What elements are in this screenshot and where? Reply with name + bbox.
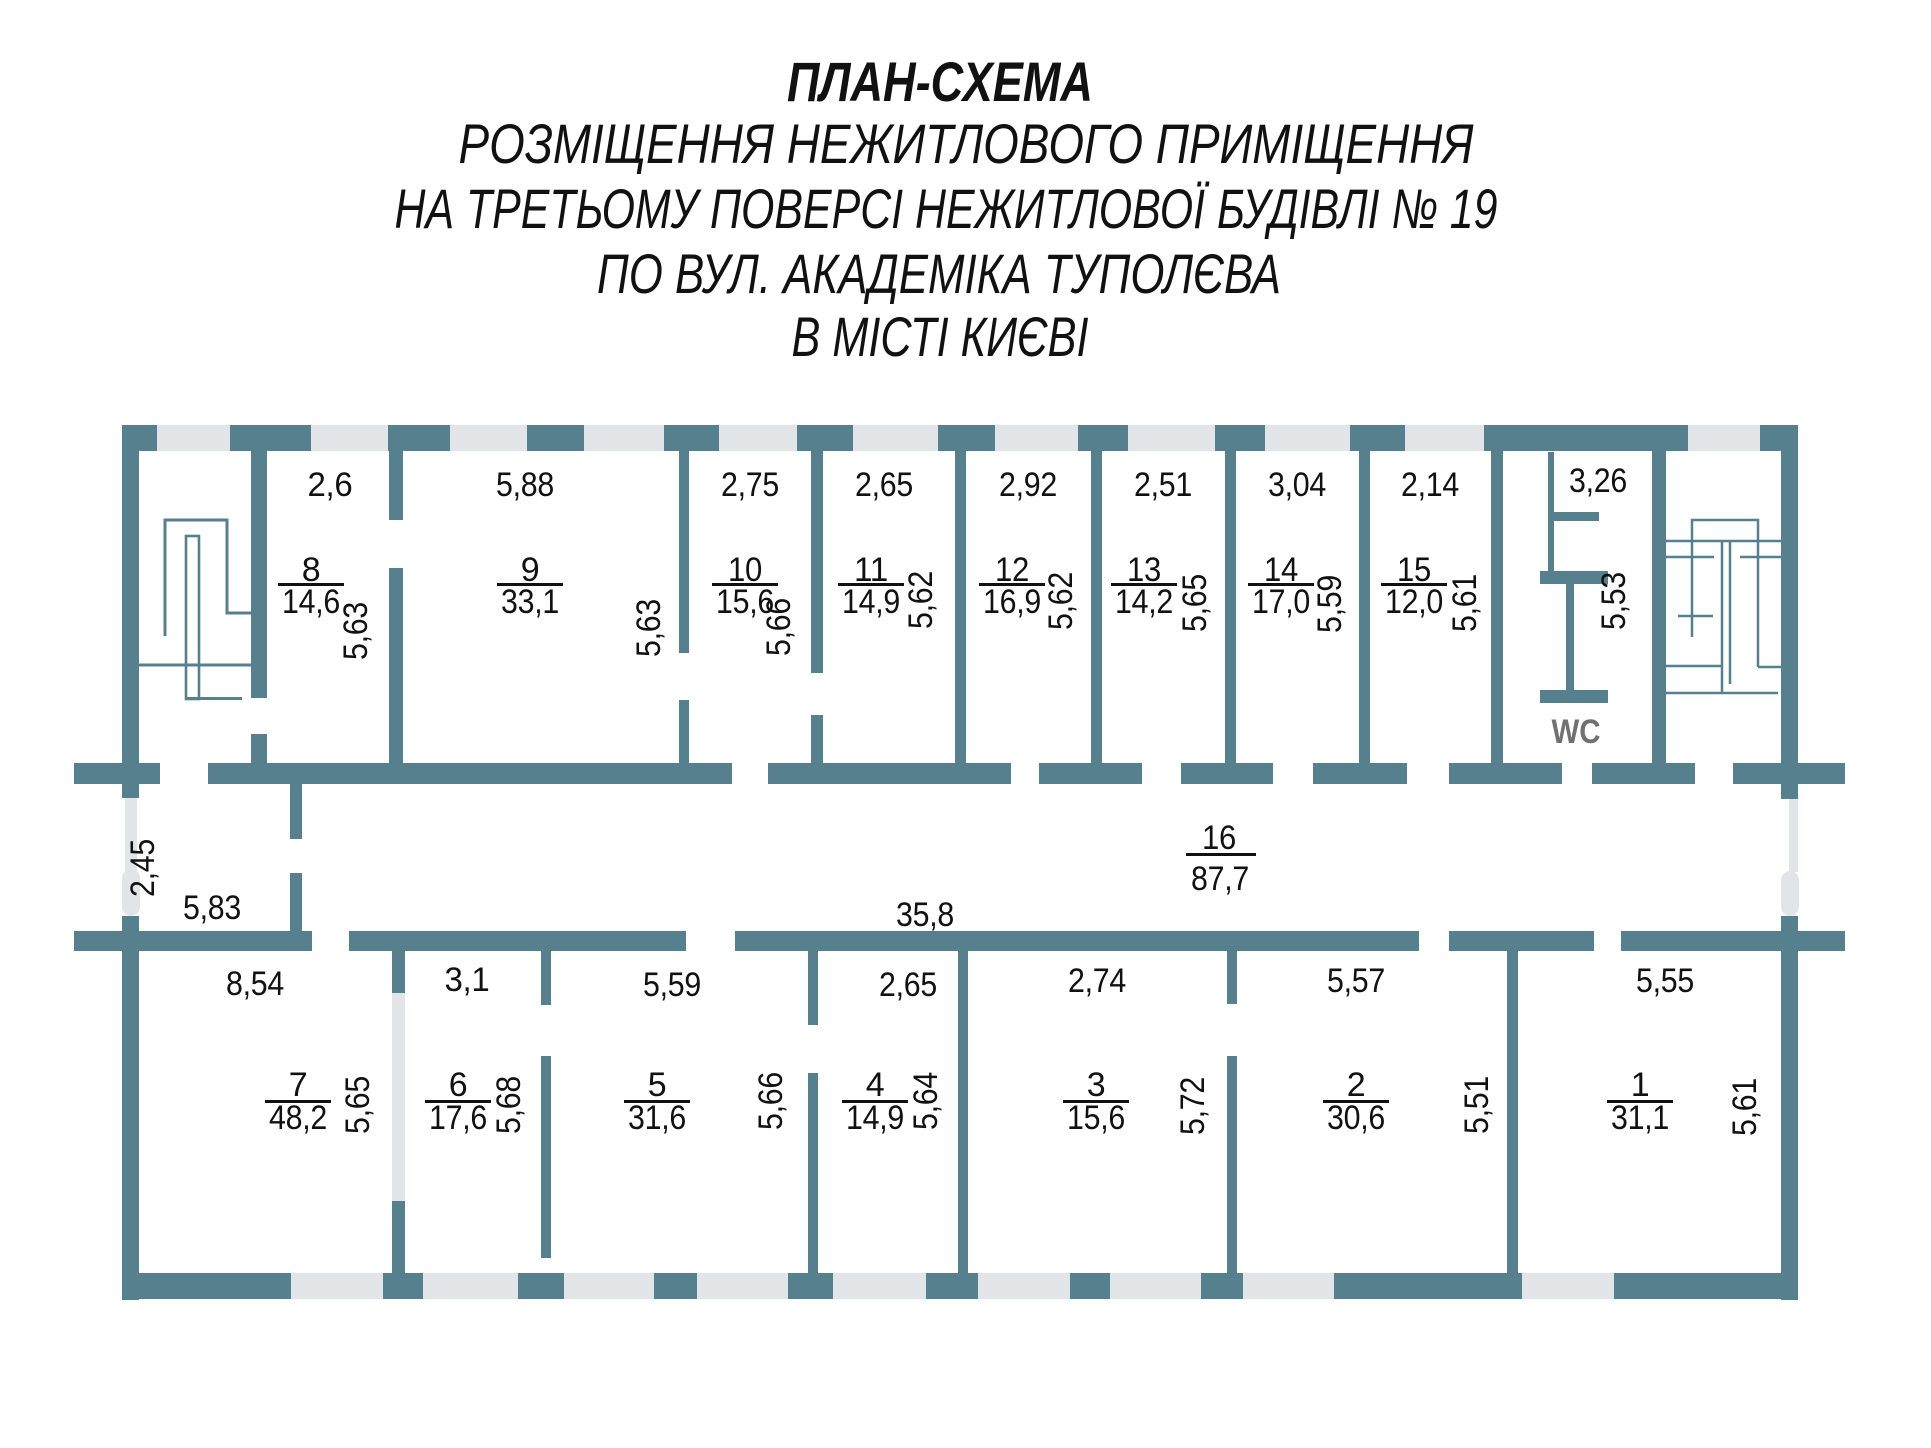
svg-text:2,45: 2,45 — [124, 839, 162, 897]
svg-text:8,54: 8,54 — [226, 965, 284, 1003]
svg-text:5,55: 5,55 — [1636, 962, 1694, 1000]
svg-text:16,9: 16,9 — [983, 583, 1041, 621]
svg-text:5,68: 5,68 — [490, 1076, 528, 1134]
svg-text:3,1: 3,1 — [445, 961, 490, 999]
svg-text:5,61: 5,61 — [1726, 1078, 1764, 1136]
svg-text:WC: WC — [1552, 713, 1601, 751]
svg-text:3,26: 3,26 — [1569, 462, 1627, 500]
svg-text:ПЛАН-СХЕМА: ПЛАН-СХЕМА — [787, 50, 1093, 113]
svg-text:5,72: 5,72 — [1174, 1077, 1212, 1135]
svg-text:14,9: 14,9 — [842, 583, 900, 621]
svg-text:17,6: 17,6 — [429, 1099, 487, 1137]
svg-text:5,64: 5,64 — [907, 1072, 945, 1130]
svg-text:2,6: 2,6 — [308, 466, 353, 504]
svg-text:НА ТРЕТЬОМУ ПОВЕРСІ НЕЖИТЛОВОЇ: НА ТРЕТЬОМУ ПОВЕРСІ НЕЖИТЛОВОЇ БУДІВЛІ №… — [395, 177, 1498, 240]
svg-text:5,59: 5,59 — [643, 966, 701, 1004]
svg-text:5,83: 5,83 — [183, 889, 241, 927]
svg-text:17,0: 17,0 — [1252, 583, 1310, 621]
svg-text:5,65: 5,65 — [1176, 574, 1214, 632]
svg-text:5,63: 5,63 — [630, 599, 668, 657]
svg-text:12,0: 12,0 — [1385, 583, 1443, 621]
svg-text:15,6: 15,6 — [1067, 1099, 1125, 1137]
svg-text:14,9: 14,9 — [846, 1099, 904, 1137]
svg-text:35,8: 35,8 — [896, 896, 954, 934]
svg-text:16: 16 — [1202, 819, 1236, 857]
svg-text:5,51: 5,51 — [1458, 1076, 1496, 1134]
svg-text:30,6: 30,6 — [1327, 1099, 1385, 1137]
svg-text:5,65: 5,65 — [339, 1076, 377, 1134]
svg-text:5,57: 5,57 — [1327, 962, 1385, 1000]
svg-text:ПО ВУЛ. АКАДЕМІКА ТУПОЛЄВА: ПО ВУЛ. АКАДЕМІКА ТУПОЛЄВА — [597, 242, 1281, 305]
svg-text:31,6: 31,6 — [628, 1099, 686, 1137]
svg-text:48,2: 48,2 — [269, 1099, 327, 1137]
svg-text:5,66: 5,66 — [752, 1072, 790, 1130]
svg-text:14,6: 14,6 — [282, 583, 340, 621]
svg-text:2,74: 2,74 — [1068, 962, 1126, 1000]
svg-text:31,1: 31,1 — [1611, 1099, 1669, 1137]
svg-text:5,62: 5,62 — [902, 571, 940, 629]
svg-text:2,65: 2,65 — [855, 466, 913, 504]
svg-text:5,88: 5,88 — [496, 466, 554, 504]
svg-text:2,51: 2,51 — [1134, 466, 1192, 504]
svg-text:33,1: 33,1 — [501, 583, 559, 621]
svg-text:2,14: 2,14 — [1401, 466, 1459, 504]
svg-text:5,66: 5,66 — [760, 598, 798, 656]
svg-text:2,92: 2,92 — [999, 466, 1057, 504]
svg-text:РОЗМІЩЕННЯ НЕЖИТЛОВОГО ПРИМІЩЕ: РОЗМІЩЕННЯ НЕЖИТЛОВОГО ПРИМІЩЕННЯ — [459, 112, 1475, 175]
svg-text:2,75: 2,75 — [721, 466, 779, 504]
svg-text:5,61: 5,61 — [1446, 574, 1484, 632]
svg-text:3,04: 3,04 — [1268, 466, 1326, 504]
svg-text:В МІСТІ КИЄВІ: В МІСТІ КИЄВІ — [792, 305, 1089, 368]
svg-text:14,2: 14,2 — [1115, 583, 1173, 621]
svg-text:5,63: 5,63 — [337, 602, 375, 660]
svg-text:2,65: 2,65 — [879, 966, 937, 1004]
svg-text:5,53: 5,53 — [1595, 572, 1633, 630]
svg-text:87,7: 87,7 — [1191, 860, 1249, 898]
svg-text:5,62: 5,62 — [1042, 572, 1080, 630]
svg-text:5,59: 5,59 — [1311, 575, 1349, 633]
